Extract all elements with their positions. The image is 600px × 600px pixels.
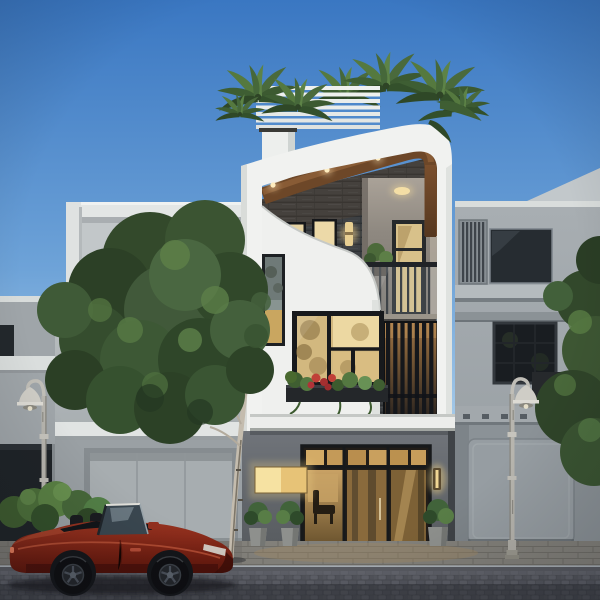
vignette-overlay: [0, 0, 600, 600]
render-image: Modern three-storey townhouse exterior -…: [0, 0, 600, 600]
